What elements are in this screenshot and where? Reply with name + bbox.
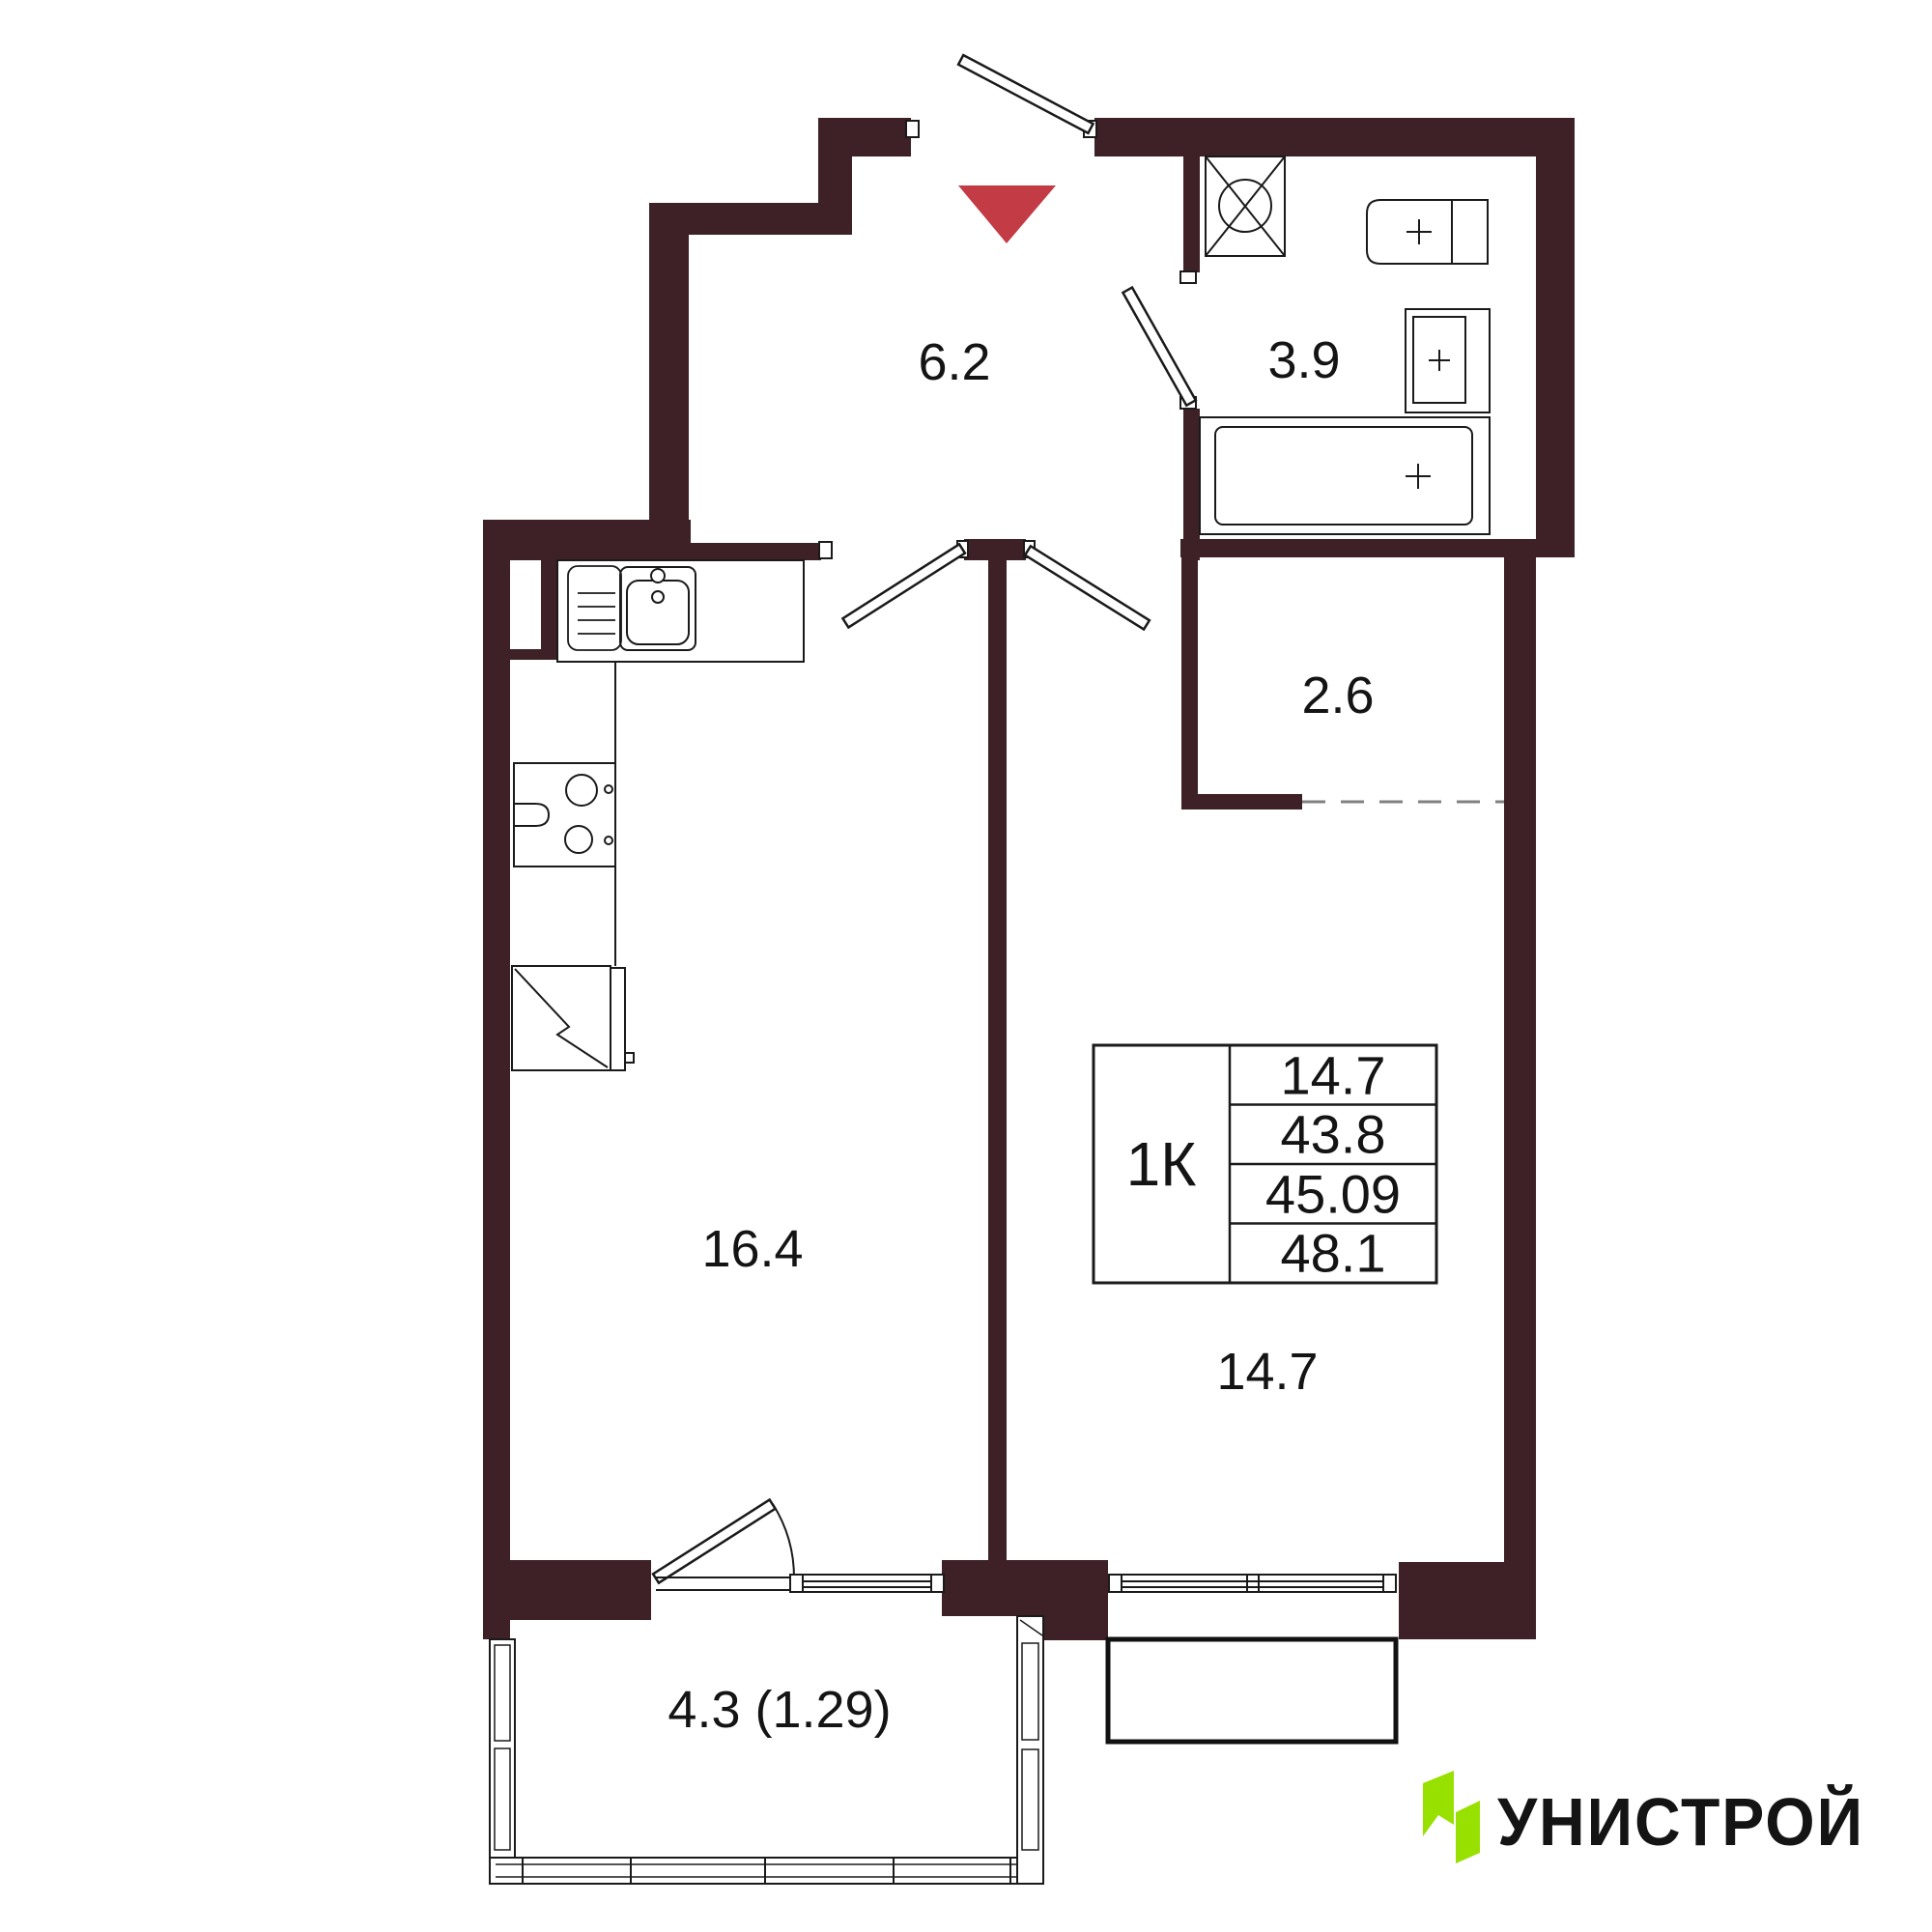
washing-machine [1206, 156, 1285, 256]
living-room-window [790, 1575, 944, 1592]
info-table: 1К 14.7 43.8 45.09 48.1 [1094, 1045, 1436, 1284]
wall-segment [942, 1560, 1108, 1616]
balcony-glazing [490, 1616, 1396, 1884]
wall-segment [541, 560, 557, 660]
balcony-right-rail [1017, 1616, 1043, 1884]
wall-segment [1181, 557, 1198, 810]
stove [514, 763, 615, 867]
logo-flag-icon [1423, 1771, 1454, 1836]
wall-segment [1037, 1616, 1108, 1640]
wall-segment [483, 520, 691, 560]
wall-segment [1399, 1562, 1536, 1639]
bedroom-door-leaf [1025, 546, 1150, 629]
wall-segment [1180, 539, 1536, 557]
developer-logo: УНИСТРОЙ [1423, 1771, 1864, 1863]
wall-segment [689, 543, 821, 560]
bathtub [1200, 417, 1490, 534]
logo-text: УНИСТРОЙ [1497, 1783, 1864, 1860]
balcony-left-rail [490, 1639, 515, 1884]
bedroom-area-label: 14.7 [1216, 1343, 1318, 1401]
kitchen-living-area-label: 16.4 [701, 1220, 803, 1278]
floor-plan: 1К 14.7 43.8 45.09 48.1 6.2 3.9 2.6 16.4… [0, 0, 1932, 1932]
wall-segment [1183, 156, 1200, 272]
table-value-row2: 43.8 [1281, 1104, 1386, 1165]
fridge [512, 966, 634, 1070]
bathroom-door-leaf [1122, 288, 1195, 406]
living-room-door-leaf [842, 544, 965, 627]
bathroom-cabinet [1406, 309, 1490, 412]
wall-segment [510, 649, 557, 660]
wall-segment [510, 1560, 651, 1620]
table-value-row3: 45.09 [1265, 1164, 1401, 1225]
balcony-door-leaf [653, 1500, 776, 1583]
wall-segment [988, 560, 1007, 1560]
doors [653, 55, 1196, 1590]
wall-segment [649, 203, 689, 560]
wall-segment [483, 520, 510, 1639]
apartment-type: 1К [1126, 1129, 1197, 1199]
hallway-area-label: 6.2 [918, 333, 990, 391]
balcony-area-label: 4.3 (1.29) [668, 1681, 891, 1739]
table-value-row4: 48.1 [1281, 1223, 1386, 1284]
logo-flag-icon [1456, 1801, 1480, 1863]
bedroom-window [1109, 1575, 1396, 1592]
walls [483, 118, 1575, 1640]
jamb-cap [1180, 271, 1196, 283]
bathroom-area-label: 3.9 [1267, 331, 1340, 389]
bathroom-sink [1367, 200, 1488, 264]
table-value-row1: 14.7 [1281, 1045, 1386, 1106]
jamb-cap [819, 542, 832, 558]
balcony-bottom-rail [490, 1858, 1043, 1884]
wall-segment [1181, 794, 1302, 810]
wall-segment [1094, 118, 1575, 156]
wall-segment [1504, 539, 1536, 1565]
wardrobe-area-label: 2.6 [1301, 667, 1374, 724]
balcony-door-swing-arc [773, 1504, 794, 1578]
bedroom-loggia-outline [1108, 1639, 1396, 1742]
jamb-cap [906, 121, 919, 137]
wall-segment [964, 539, 1026, 560]
wall-segment [1183, 409, 1200, 560]
entrance-door-leaf [958, 55, 1093, 133]
entrance-marker-triangle [958, 185, 1056, 243]
wall-segment [1536, 118, 1575, 557]
